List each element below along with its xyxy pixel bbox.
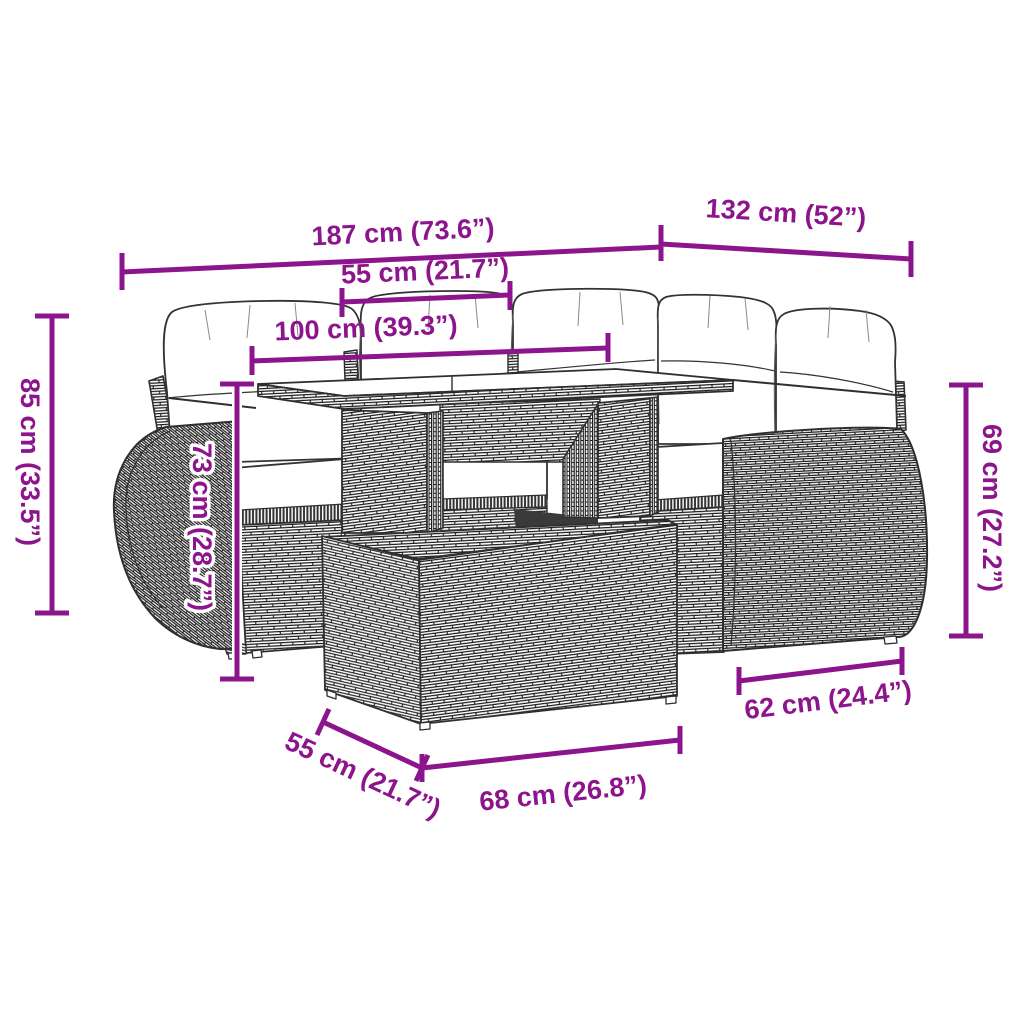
svg-text:85 cm (33.5”): 85 cm (33.5”): [15, 378, 45, 546]
svg-text:73 cm (28.7”): 73 cm (28.7”): [187, 443, 217, 611]
svg-text:69 cm (27.2”): 69 cm (27.2”): [977, 424, 1007, 592]
